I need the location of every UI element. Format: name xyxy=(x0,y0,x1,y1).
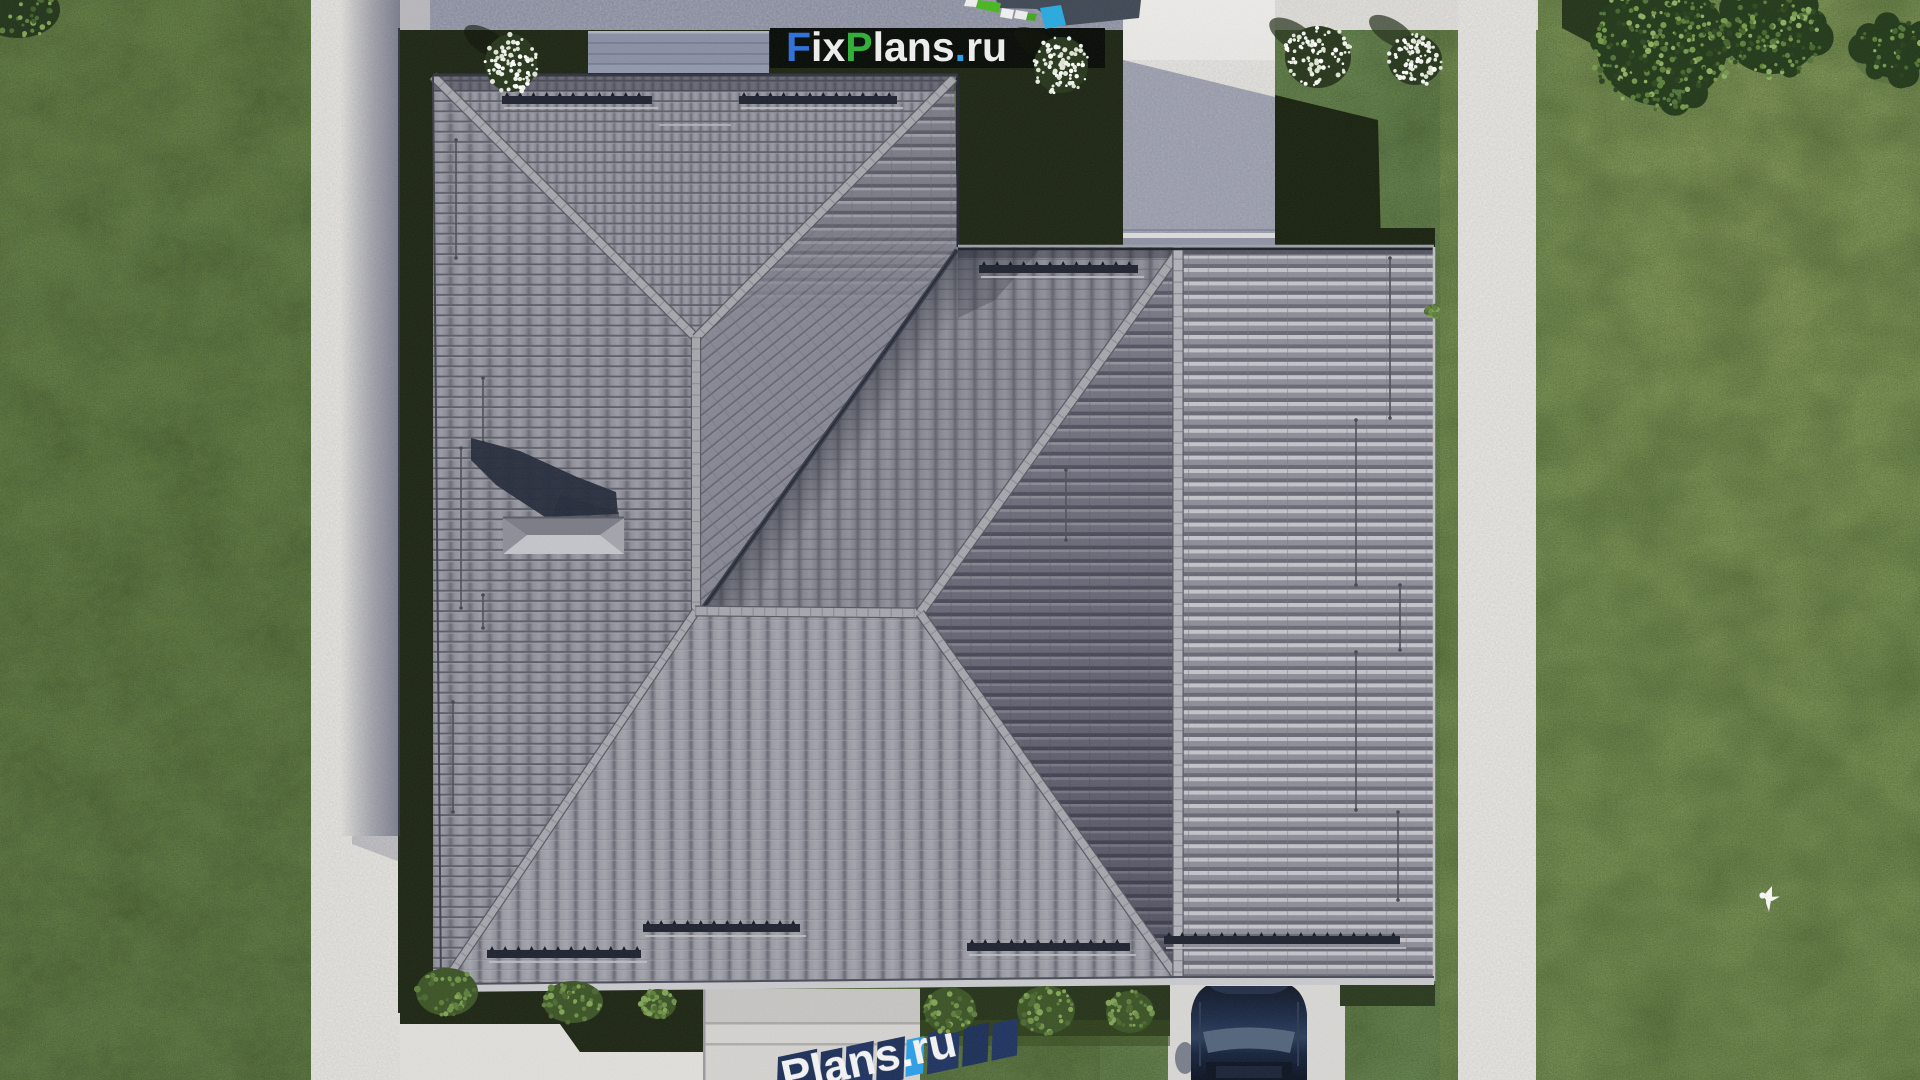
svg-text:FixPlans.ru: FixPlans.ru xyxy=(786,24,1007,70)
